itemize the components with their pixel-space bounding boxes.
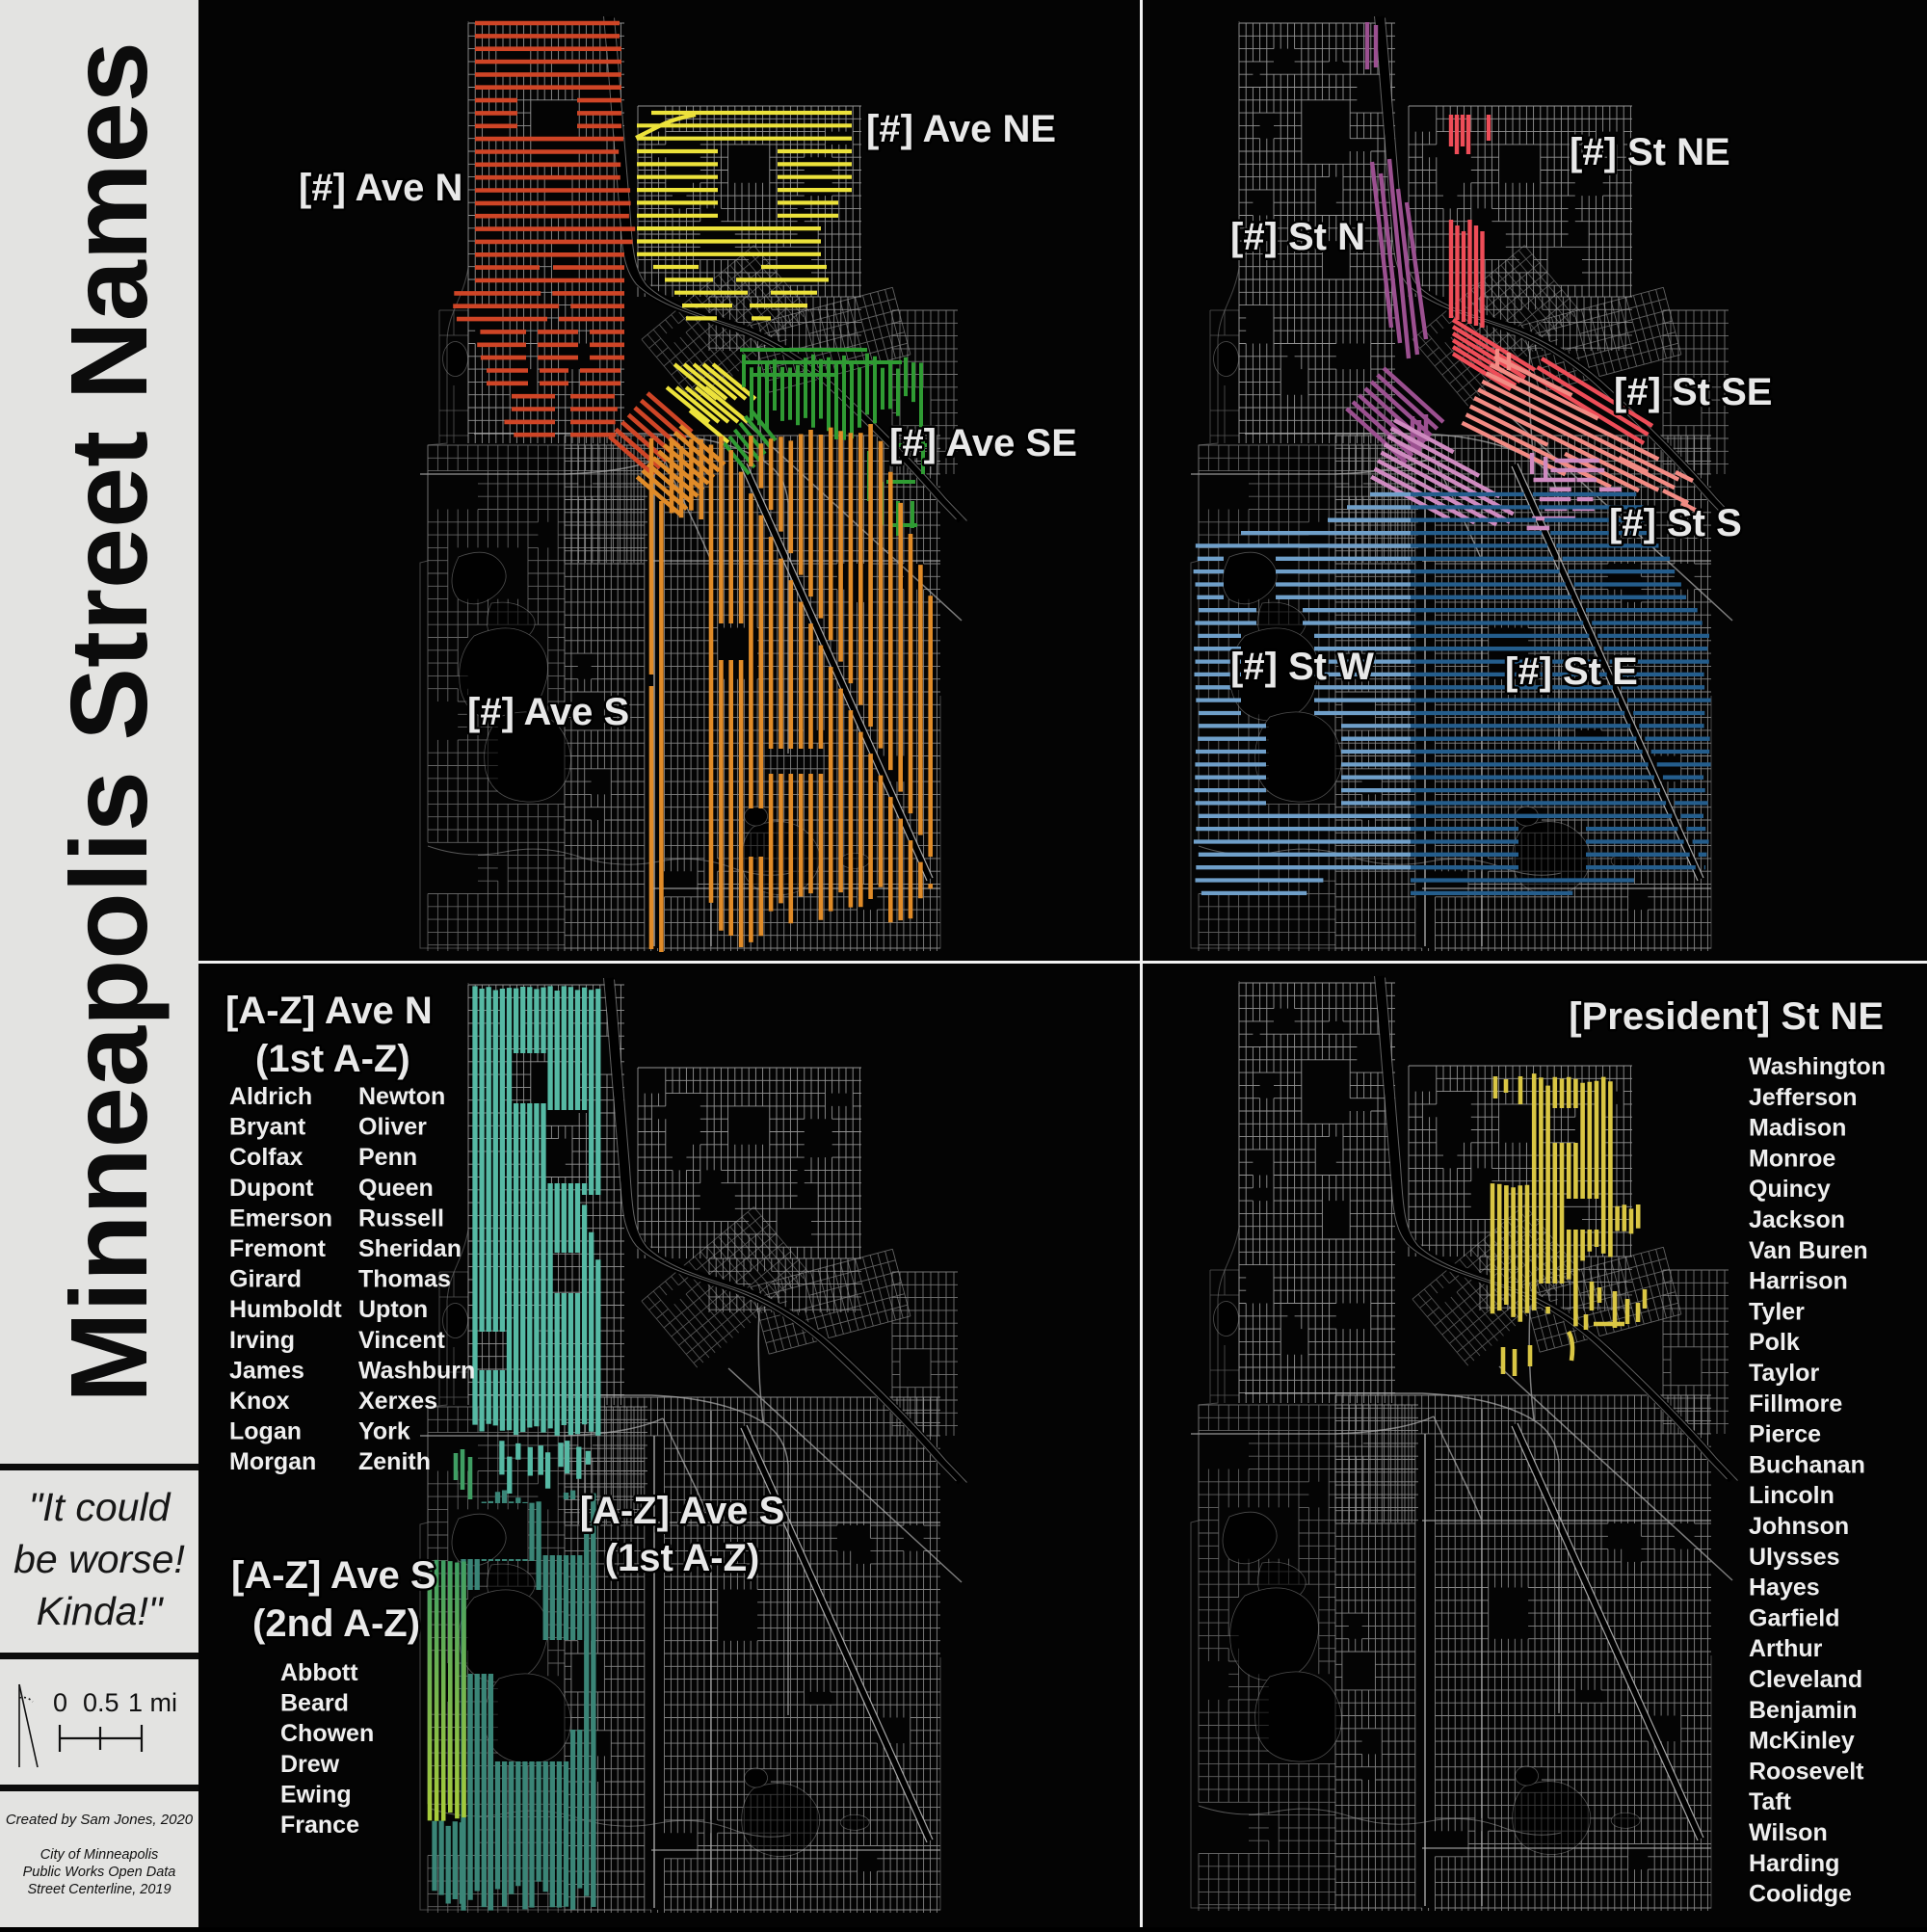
svg-text:Roosevelt: Roosevelt: [1749, 1758, 1864, 1785]
svg-text:0: 0: [53, 1688, 67, 1717]
svg-text:Morgan: Morgan: [229, 1448, 316, 1475]
svg-text:Beard: Beard: [280, 1690, 349, 1717]
svg-text:Penn: Penn: [358, 1144, 417, 1171]
svg-text:[#] Ave S: [#] Ave S: [467, 691, 629, 733]
svg-text:Abbott: Abbott: [280, 1659, 358, 1686]
svg-text:Lincoln: Lincoln: [1749, 1482, 1835, 1509]
svg-text:[#] St SE: [#] St SE: [1614, 371, 1772, 413]
svg-text:James: James: [229, 1357, 304, 1384]
svg-text:[A-Z] Ave S: [A-Z] Ave S: [231, 1554, 436, 1597]
svg-text:France: France: [280, 1812, 359, 1839]
svg-text:Wilson: Wilson: [1749, 1819, 1828, 1846]
svg-text:1 mi: 1 mi: [128, 1688, 177, 1717]
svg-text:Emerson: Emerson: [229, 1204, 332, 1231]
svg-text:Created by Sam Jones, 2020: Created by Sam Jones, 2020: [6, 1812, 194, 1828]
svg-text:(2nd A-Z): (2nd A-Z): [252, 1602, 420, 1645]
svg-text:Kinda!": Kinda!": [37, 1589, 165, 1633]
svg-text:Washburn: Washburn: [358, 1357, 475, 1384]
svg-text:[#] St S: [#] St S: [1609, 502, 1742, 544]
svg-text:Washington: Washington: [1749, 1053, 1886, 1080]
svg-text:Street Centerline, 2019: Street Centerline, 2019: [27, 1882, 171, 1897]
svg-text:Cleveland: Cleveland: [1749, 1666, 1862, 1693]
svg-text:Colfax: Colfax: [229, 1144, 304, 1171]
svg-text:be worse!: be worse!: [13, 1537, 185, 1581]
svg-text:Taft: Taft: [1749, 1788, 1792, 1815]
svg-text:Aldrich: Aldrich: [229, 1083, 312, 1110]
svg-text:Ewing: Ewing: [280, 1781, 352, 1808]
svg-text:Vincent: Vincent: [358, 1327, 446, 1354]
svg-text:Tyler: Tyler: [1749, 1298, 1805, 1325]
svg-text:Drew: Drew: [280, 1751, 340, 1778]
svg-text:[A-Z] Ave N: [A-Z] Ave N: [225, 990, 433, 1032]
svg-text:Fillmore: Fillmore: [1749, 1390, 1842, 1417]
svg-text:[#] Ave SE: [#] Ave SE: [889, 422, 1077, 464]
svg-text:Coolidge: Coolidge: [1749, 1881, 1852, 1908]
svg-text:Harrison: Harrison: [1749, 1268, 1848, 1295]
svg-text:Chowen: Chowen: [280, 1720, 374, 1747]
svg-text:Jefferson: Jefferson: [1749, 1084, 1858, 1111]
svg-text:Garfield: Garfield: [1749, 1604, 1839, 1631]
svg-text:(1st A-Z): (1st A-Z): [255, 1038, 410, 1080]
svg-text:Jackson: Jackson: [1749, 1206, 1845, 1233]
svg-text:Arthur: Arthur: [1749, 1635, 1823, 1662]
svg-text:Johnson: Johnson: [1749, 1513, 1849, 1540]
svg-text:City of Minneapolis: City of Minneapolis: [40, 1847, 159, 1863]
svg-text:Hayes: Hayes: [1749, 1575, 1820, 1601]
svg-text:Pierce: Pierce: [1749, 1421, 1821, 1448]
svg-text:Russell: Russell: [358, 1204, 444, 1231]
svg-text:(1st A-Z): (1st A-Z): [605, 1537, 760, 1579]
svg-text:Dupont: Dupont: [229, 1175, 314, 1202]
svg-text:Madison: Madison: [1749, 1115, 1846, 1142]
svg-text:Polk: Polk: [1749, 1329, 1800, 1356]
svg-text:Taylor: Taylor: [1749, 1360, 1819, 1387]
svg-text:[#] St N: [#] St N: [1230, 216, 1365, 258]
svg-text:Humboldt: Humboldt: [229, 1296, 342, 1323]
svg-text:Ulysses: Ulysses: [1749, 1544, 1840, 1571]
svg-text:[A-Z] Ave S: [A-Z] Ave S: [580, 1490, 785, 1532]
svg-text:Sheridan: Sheridan: [358, 1235, 462, 1262]
svg-text:[#] St NE: [#] St NE: [1570, 131, 1730, 173]
svg-text:Upton: Upton: [358, 1296, 428, 1323]
svg-text:Zenith: Zenith: [358, 1448, 431, 1475]
svg-text:[#] Ave NE: [#] Ave NE: [866, 108, 1056, 150]
svg-text:Benjamin: Benjamin: [1749, 1697, 1858, 1724]
svg-text:[#] St W: [#] St W: [1230, 646, 1374, 688]
svg-text:[#] Ave N: [#] Ave N: [299, 167, 462, 209]
svg-text:Girard: Girard: [229, 1266, 302, 1293]
svg-text:Irving: Irving: [229, 1327, 295, 1354]
svg-text:Knox: Knox: [229, 1388, 290, 1415]
svg-text:Fremont: Fremont: [229, 1235, 327, 1262]
svg-text:Newton: Newton: [358, 1083, 445, 1110]
svg-text:0.5: 0.5: [83, 1688, 119, 1717]
svg-text:Public Works Open Data: Public Works Open Data: [23, 1865, 176, 1880]
svg-text:Harding: Harding: [1749, 1850, 1839, 1877]
svg-text:York: York: [358, 1418, 410, 1445]
svg-text:Quincy: Quincy: [1749, 1176, 1831, 1203]
svg-text:McKinley: McKinley: [1749, 1728, 1855, 1755]
svg-text:Xerxes: Xerxes: [358, 1388, 437, 1415]
svg-text:Buchanan: Buchanan: [1749, 1451, 1865, 1478]
svg-text:Queen: Queen: [358, 1175, 434, 1202]
svg-text:Bryant: Bryant: [229, 1114, 306, 1141]
svg-text:Minneapolis Street Names: Minneapolis Street Names: [48, 41, 171, 1403]
svg-text:Van Buren: Van Buren: [1749, 1237, 1868, 1264]
svg-text:Oliver: Oliver: [358, 1114, 427, 1141]
svg-text:[President] St NE: [President] St NE: [1569, 995, 1884, 1038]
svg-text:"It could: "It could: [29, 1485, 172, 1529]
svg-text:Thomas: Thomas: [358, 1266, 451, 1293]
svg-text:Monroe: Monroe: [1749, 1145, 1835, 1172]
svg-text:Logan: Logan: [229, 1418, 302, 1445]
svg-text:[#] St E: [#] St E: [1505, 650, 1638, 693]
